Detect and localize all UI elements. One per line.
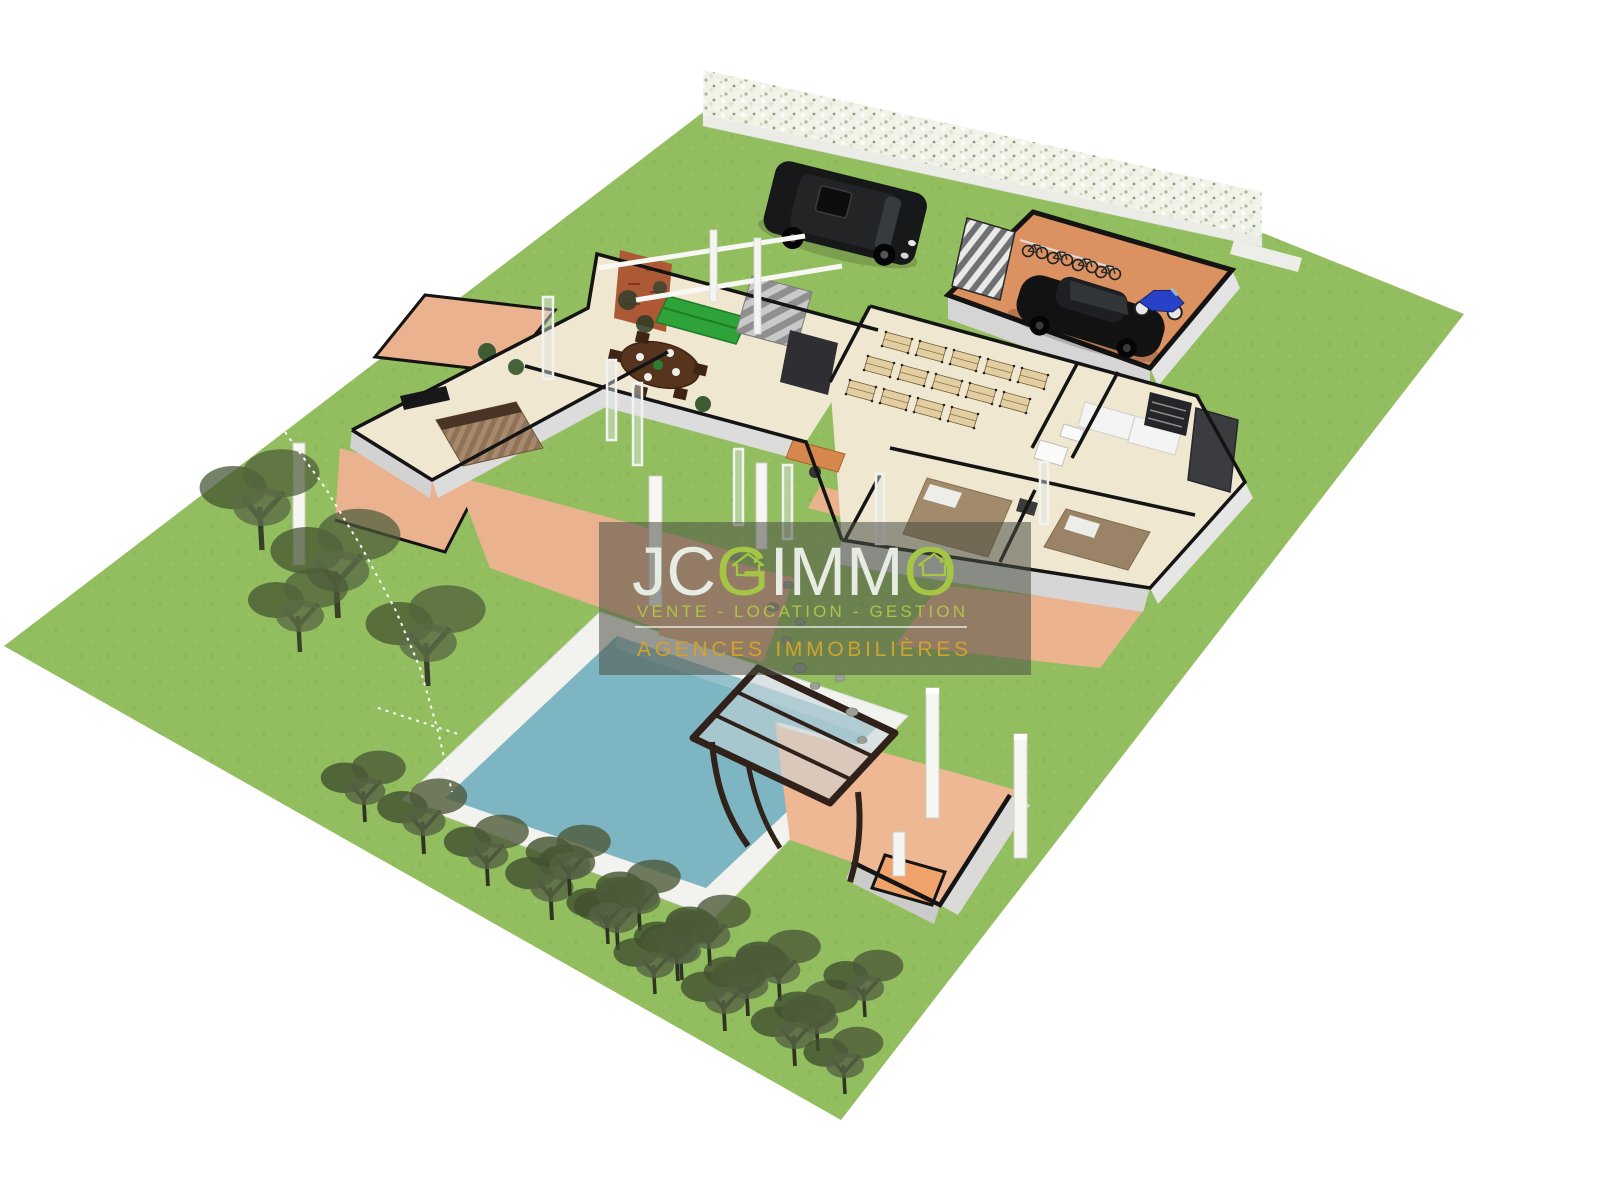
patio-pillar <box>926 688 939 818</box>
glass-panel <box>633 383 642 465</box>
white-post <box>710 230 717 302</box>
scene-svg: JCGIMMO VENTE - LOCATION - GESTION AGENC… <box>0 0 1600 1200</box>
brand-logo-text: JCGIMMO <box>632 533 957 610</box>
plate <box>636 353 644 361</box>
glass-panel <box>607 360 616 440</box>
plate <box>672 368 680 376</box>
plate <box>644 373 652 381</box>
dark-wardrobe <box>1188 408 1238 492</box>
rock-icon <box>810 683 820 690</box>
pool-house-door <box>893 832 905 876</box>
rock-icon <box>846 708 858 716</box>
plant-icon <box>508 359 524 375</box>
glass-panel <box>734 449 743 525</box>
glass-panel <box>543 297 553 379</box>
rock-icon <box>835 675 845 682</box>
watermark: JCGIMMO VENTE - LOCATION - GESTION AGENC… <box>599 522 1031 675</box>
vine-plant <box>618 290 638 310</box>
patio-pillar <box>1014 734 1027 858</box>
tagline-text: VENTE - LOCATION - GESTION <box>637 602 965 621</box>
centerpiece <box>653 360 663 370</box>
brand-o: O <box>903 533 957 610</box>
glass-panel <box>1040 462 1048 524</box>
white-post <box>754 238 761 334</box>
brand-imm: IMM <box>770 533 904 610</box>
brand-g: G <box>716 533 770 610</box>
floor-plan-page: JCGIMMO VENTE - LOCATION - GESTION AGENC… <box>0 0 1600 1200</box>
vine-plant <box>636 315 654 333</box>
brand-jc: JC <box>632 533 716 610</box>
rock-icon <box>857 737 867 744</box>
plant-icon <box>695 396 711 412</box>
